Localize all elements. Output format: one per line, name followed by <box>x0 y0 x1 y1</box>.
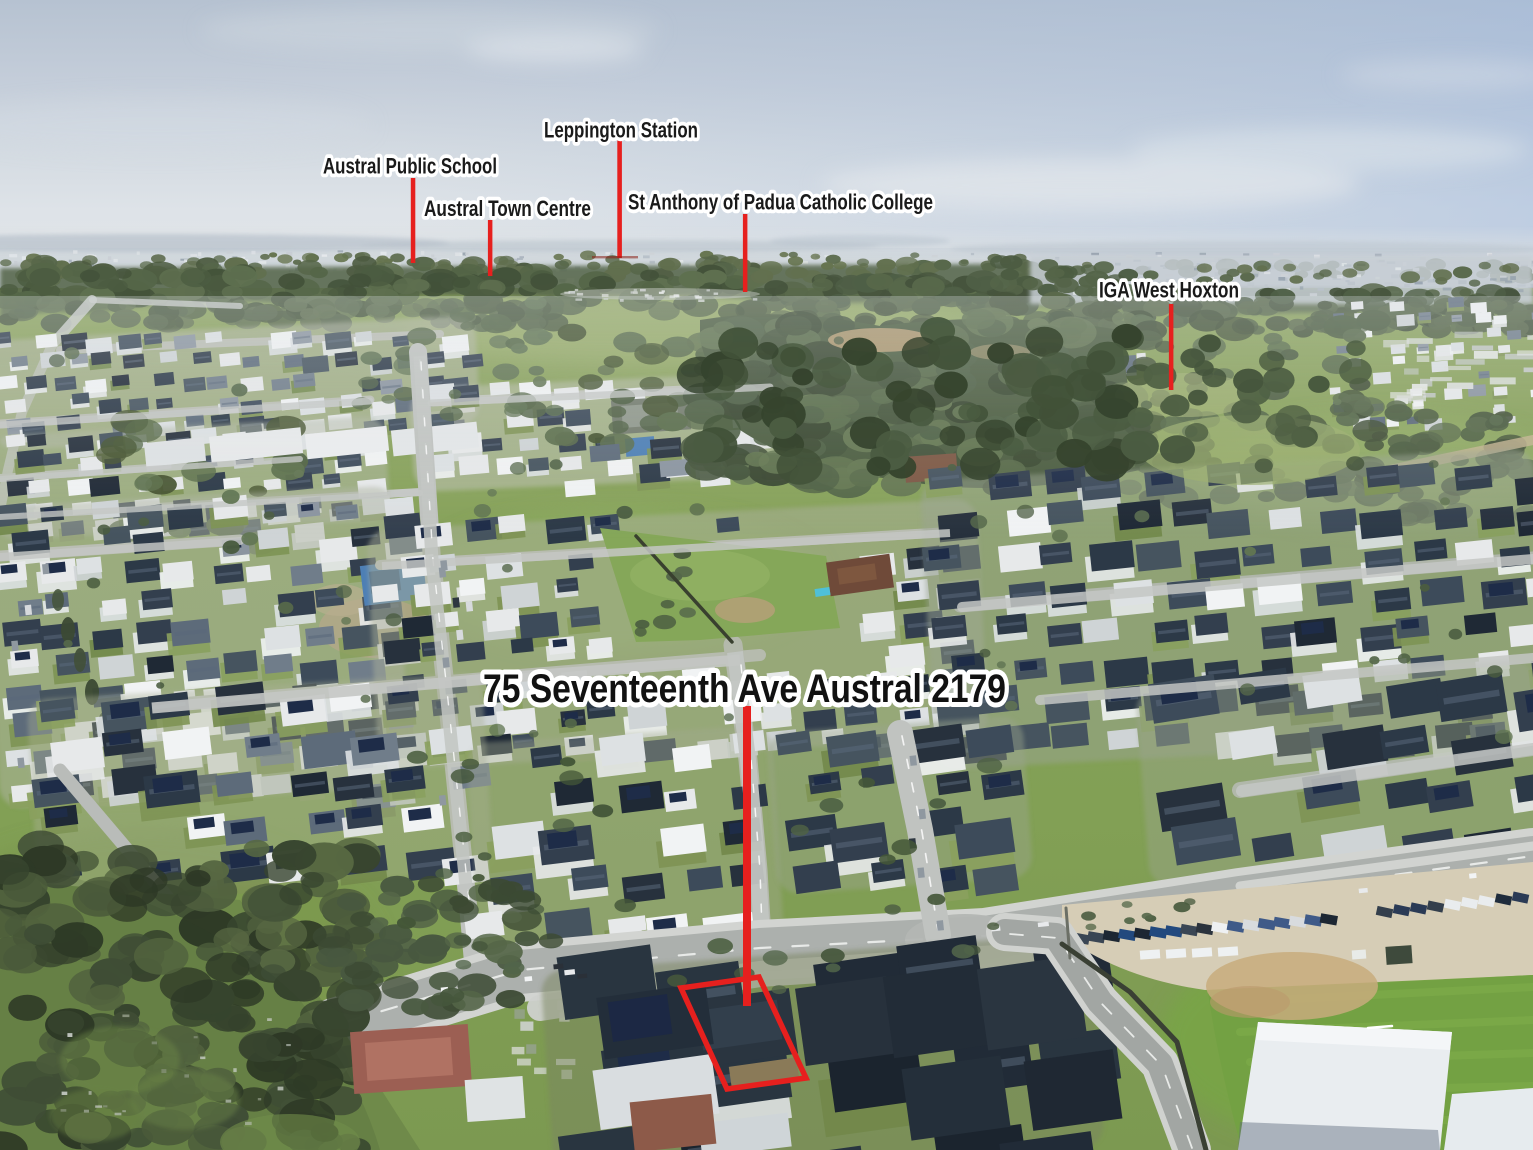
svg-text:IGA West Hoxton: IGA West Hoxton <box>1099 278 1239 303</box>
svg-text:Austral Town Centre: Austral Town Centre <box>424 196 591 221</box>
svg-text:St Anthony of Padua Catholic C: St Anthony of Padua Catholic College <box>628 190 933 215</box>
svg-text:Leppington Station: Leppington Station <box>544 118 698 143</box>
svg-text:75 Seventeenth Ave Austral 217: 75 Seventeenth Ave Austral 2179 <box>483 667 1006 711</box>
svg-text:Austral Public School: Austral Public School <box>323 154 497 179</box>
